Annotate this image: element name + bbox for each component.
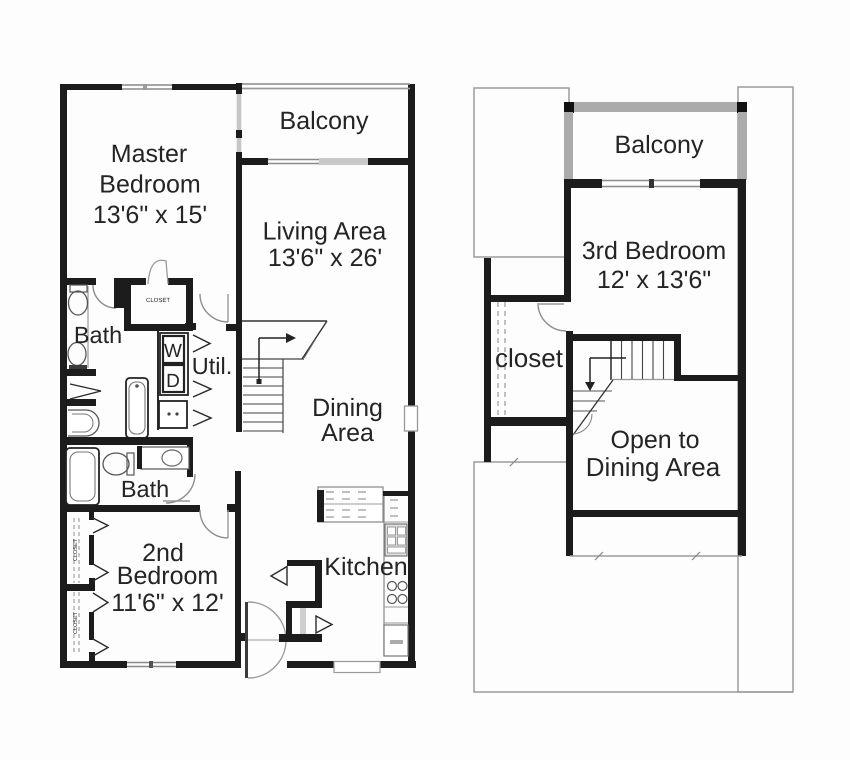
svg-text:CLOSET: CLOSET <box>73 538 79 561</box>
svg-text:11'6" x 12': 11'6" x 12' <box>111 589 223 617</box>
svg-text:Dining Area: Dining Area <box>586 452 721 482</box>
svg-text:Balcony: Balcony <box>615 131 704 159</box>
svg-text:Bedroom: Bedroom <box>99 171 200 199</box>
svg-text:Area: Area <box>321 419 374 447</box>
svg-text:Living Area: Living Area <box>263 218 387 246</box>
svg-text:Kitchen: Kitchen <box>324 553 407 581</box>
svg-text:closet: closet <box>495 343 564 373</box>
svg-text:D: D <box>166 371 180 392</box>
svg-text:Util.: Util. <box>192 353 232 379</box>
svg-text:13'6" x 15': 13'6" x 15' <box>93 201 207 229</box>
svg-text:Open to: Open to <box>611 426 700 454</box>
svg-text:12' x 13'6": 12' x 13'6" <box>597 266 711 294</box>
svg-text:Bath: Bath <box>74 322 122 348</box>
svg-text:13'6" x 26': 13'6" x 26' <box>268 244 382 272</box>
svg-text:W: W <box>164 341 182 362</box>
svg-text:Dining: Dining <box>312 394 383 422</box>
svg-text:Bath: Bath <box>121 476 169 502</box>
svg-text:CLOSET: CLOSET <box>73 611 79 634</box>
svg-text:Master: Master <box>111 140 187 168</box>
svg-text:Bedroom: Bedroom <box>117 562 218 590</box>
svg-text:Balcony: Balcony <box>280 107 369 135</box>
svg-text:CLOSET: CLOSET <box>146 297 170 304</box>
svg-text:3rd Bedroom: 3rd Bedroom <box>582 237 727 265</box>
